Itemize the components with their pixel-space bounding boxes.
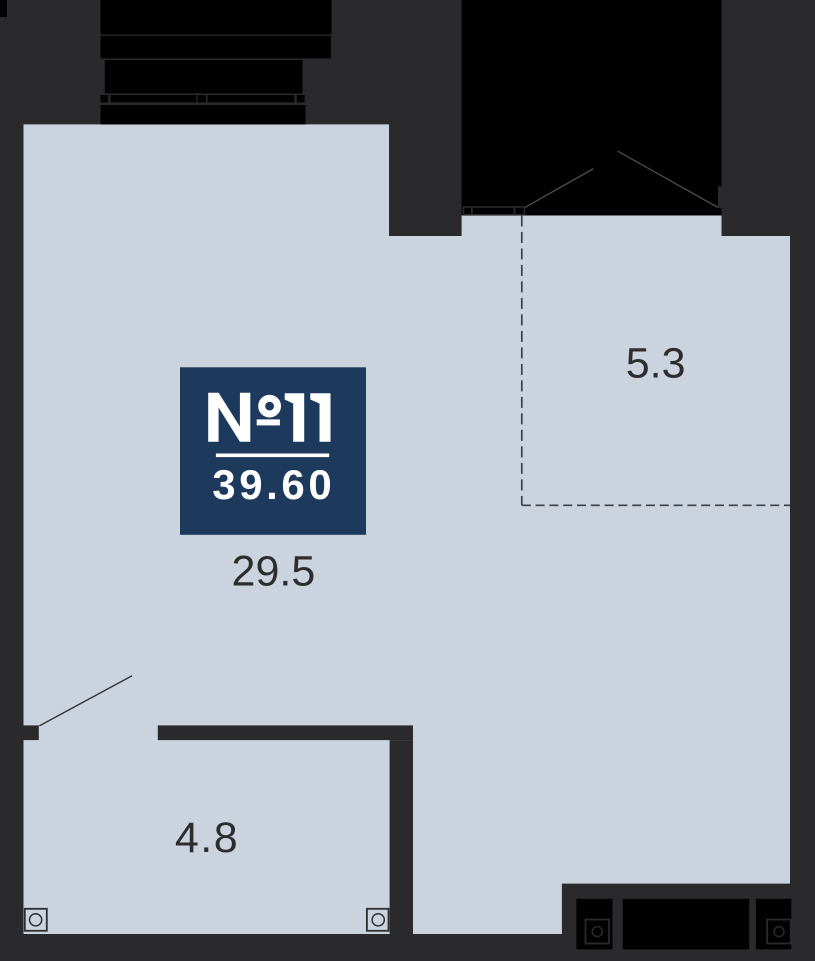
svg-text:4.8: 4.8 [175,814,239,862]
svg-text:39.60: 39.60 [212,461,335,508]
svg-text:29.5: 29.5 [232,548,316,596]
svg-text:5.3: 5.3 [626,339,686,387]
